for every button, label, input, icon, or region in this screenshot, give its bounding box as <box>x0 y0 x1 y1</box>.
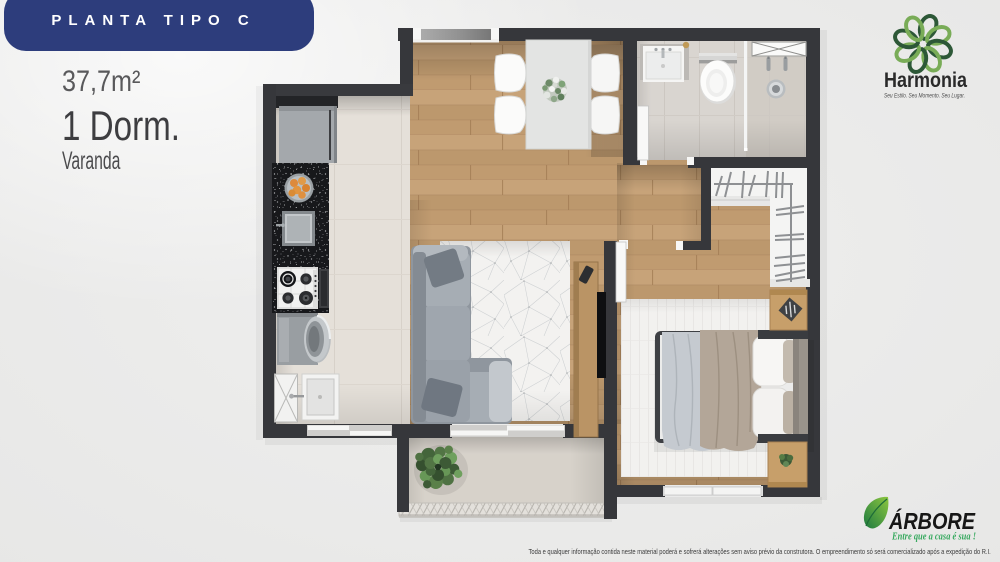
svg-text:Harmonia: Harmonia <box>884 69 967 92</box>
svg-text:ÁRBORE: ÁRBORE <box>888 507 975 534</box>
svg-text:Entre que a casa é sua !: Entre que a casa é sua ! <box>891 532 976 543</box>
svg-text:Seu Estilo. Seu Momento. Seu L: Seu Estilo. Seu Momento. Seu Lugar. <box>884 93 965 100</box>
